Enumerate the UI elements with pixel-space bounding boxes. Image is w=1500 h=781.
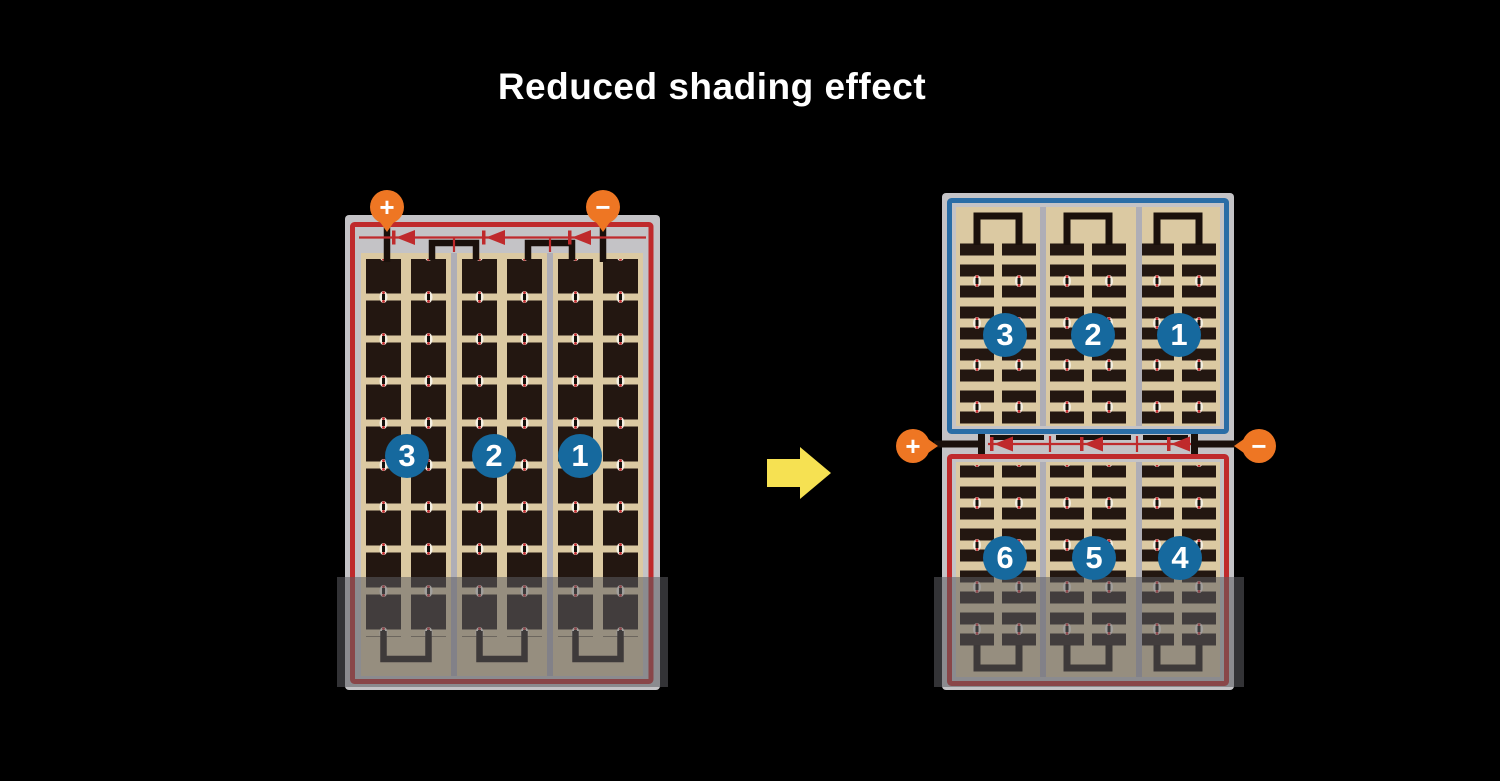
- string-number-badge: 6: [983, 536, 1027, 580]
- string-number-badge: 3: [385, 434, 429, 478]
- string-number-badge: 4: [1158, 536, 1202, 580]
- right-panel: [934, 193, 1244, 690]
- plus-terminal-icon: +: [370, 190, 404, 224]
- solar-panel-artwork: [0, 0, 1500, 781]
- page-title: Reduced shading effect: [412, 66, 1012, 108]
- string-number-badge: 2: [472, 434, 516, 478]
- plus-terminal-icon: +: [896, 429, 930, 463]
- string-number-badge: 1: [558, 434, 602, 478]
- left-shade-overlay: [337, 577, 668, 687]
- string-number-badge: 5: [1072, 536, 1116, 580]
- diagram-canvas: Reduced shading effect + − 3 2 1 + − 3 2…: [0, 0, 1500, 781]
- string-number-badge: 1: [1157, 313, 1201, 357]
- minus-terminal-icon: −: [1242, 429, 1276, 463]
- right-arrow-icon: [767, 447, 831, 499]
- minus-terminal-icon: −: [586, 190, 620, 224]
- string-number-badge: 2: [1071, 313, 1115, 357]
- right-shade-overlay: [934, 577, 1244, 687]
- string-number-badge: 3: [983, 313, 1027, 357]
